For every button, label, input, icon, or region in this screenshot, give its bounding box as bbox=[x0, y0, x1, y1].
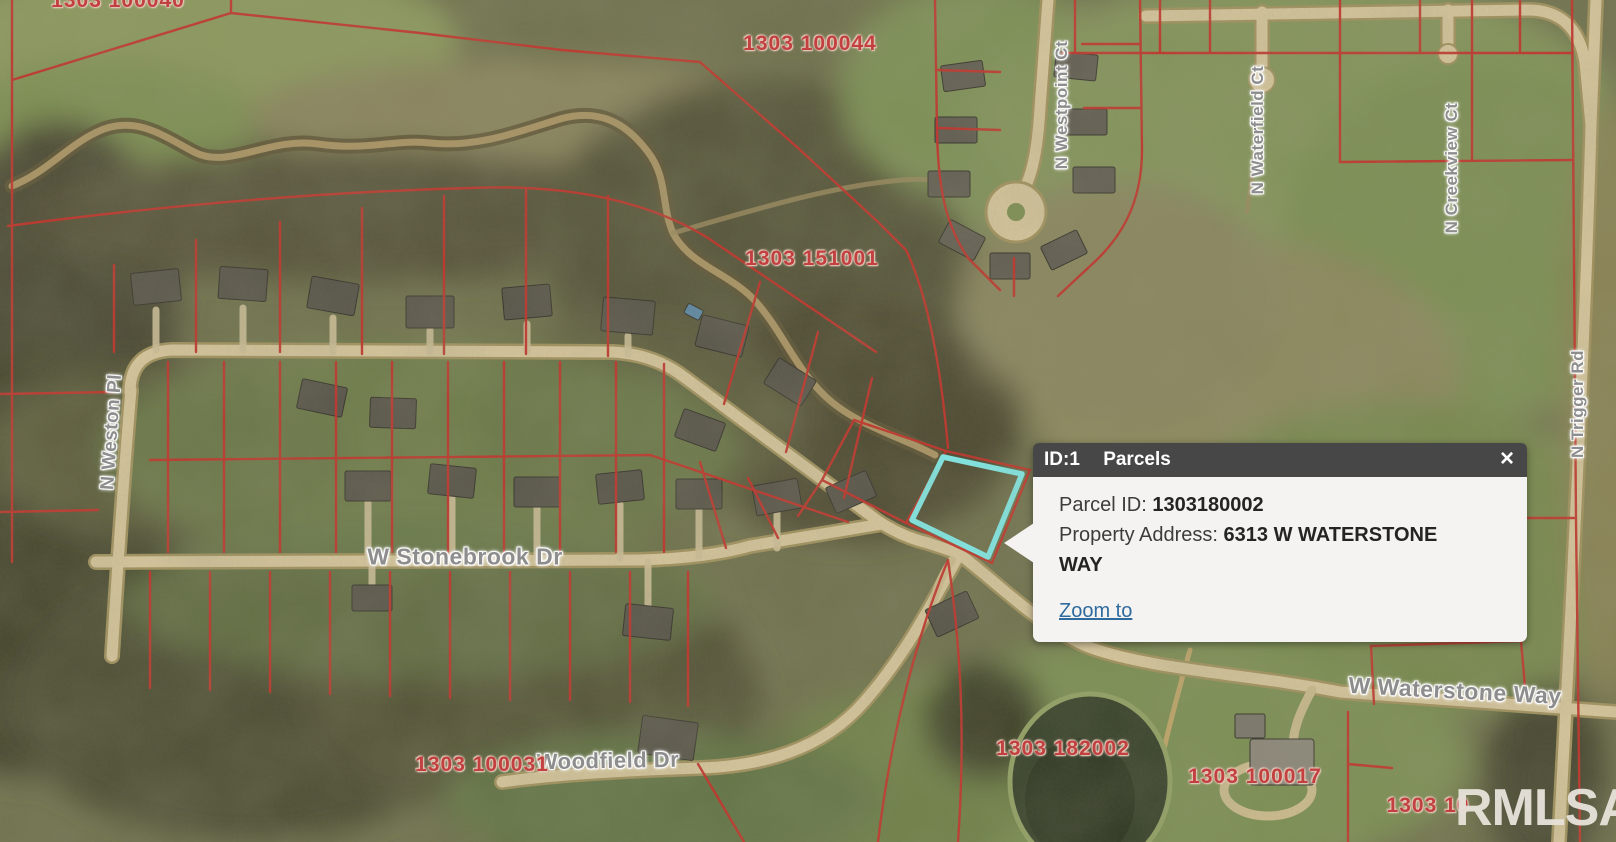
identify-popup: ID:1 Parcels × Parcel ID: 1303180002 Pro… bbox=[1033, 443, 1527, 642]
popup-body: Parcel ID: 1303180002 Property Address: … bbox=[1033, 477, 1527, 642]
parcel-map-viewer: N Westpoint Ct N Waterfield Ct N Creekvi… bbox=[0, 0, 1616, 842]
property-address-field-label: Property Address: bbox=[1059, 524, 1224, 546]
map-canvas[interactable] bbox=[0, 0, 1616, 842]
zoom-to-link[interactable]: Zoom to bbox=[1059, 596, 1132, 626]
rmlsa-watermark: RMLSA bbox=[1455, 778, 1616, 838]
popup-callout-arrow bbox=[1004, 523, 1034, 563]
popup-feature-id: ID:1 bbox=[1044, 449, 1080, 470]
aerial-texture bbox=[0, 0, 1616, 842]
popup-header: ID:1 Parcels × bbox=[1033, 443, 1527, 477]
parcel-id-field-label: Parcel ID: bbox=[1059, 494, 1152, 516]
close-icon[interactable]: × bbox=[1500, 443, 1514, 475]
popup-layer-name: Parcels bbox=[1103, 449, 1171, 470]
parcel-id-field-value: 1303180002 bbox=[1152, 494, 1263, 516]
